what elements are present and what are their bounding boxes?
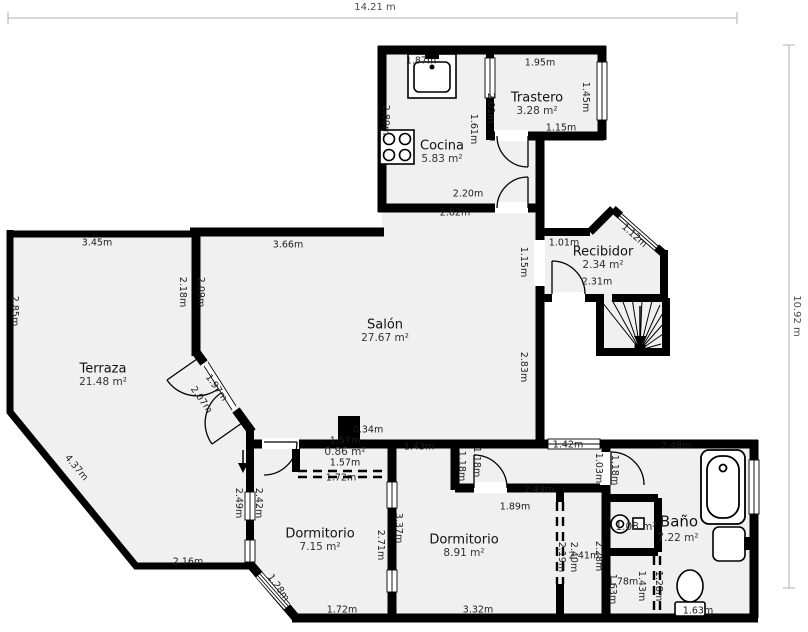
dim-label: 2.82m	[440, 208, 470, 218]
dim-label: 1.01m	[549, 238, 579, 248]
dim-label: 2.48m	[661, 441, 691, 451]
room-label-trastero: Trastero	[511, 92, 563, 105]
dim-label: 1.18m	[456, 451, 466, 481]
dim-label: 1.61m	[468, 114, 478, 144]
dim-label: 2.31m	[582, 277, 612, 287]
dim-label: 2.49m	[233, 488, 243, 518]
room-label-recibidor: Recibidor	[573, 246, 634, 259]
room-label-cocina: Cocina	[420, 140, 464, 153]
overall-width-label: 14.21 m	[354, 3, 396, 13]
dim-label: 1.87m	[406, 56, 436, 66]
dim-label: 1.45m	[580, 82, 590, 112]
room-label-terraza: Terraza	[80, 363, 127, 376]
dim-label: 1.57m	[330, 436, 360, 446]
room-label-dormitorio-2: Dormitorio	[429, 534, 498, 547]
room-area-salon: 27.67 m²	[361, 333, 409, 344]
overall-height-label: 10.92 m	[791, 295, 801, 337]
dim-label: 1.63m	[607, 574, 617, 604]
room-area-dormitorio-1: 7.15 m²	[299, 542, 340, 553]
dim-label: 2.19m	[556, 542, 566, 572]
dim-label: 2.18m	[177, 277, 187, 307]
dim-label: 1.18m	[609, 455, 619, 485]
room-area-dormitorio-2: 8.91 m²	[443, 548, 484, 559]
dim-label: 1.42m	[553, 440, 583, 450]
dim-label: 2.83m	[518, 352, 528, 382]
room-area-bano: 7.22 m²	[657, 533, 698, 544]
dim-label: 3.66m	[273, 240, 303, 250]
dim-label: 1.28m	[653, 571, 663, 601]
dim-label: 2.42m	[253, 488, 263, 518]
dim-label: 3.32m	[463, 605, 493, 615]
dim-label: 2.20m	[453, 189, 483, 199]
dim-label: 2.16m	[173, 557, 203, 567]
dim-label: 1.57m	[330, 458, 360, 468]
dim-label: 2.80m	[380, 105, 390, 135]
dim-label: 2.09m	[195, 277, 205, 307]
dim-label: 1.72m	[326, 473, 356, 483]
dim-label: 1.72m	[327, 605, 357, 615]
dim-label: 1.03m	[593, 453, 603, 483]
dim-label: 1.15m	[546, 123, 576, 133]
room-area-trastero: 3.28 m²	[516, 106, 557, 117]
room-label-bano: Baño	[660, 515, 698, 530]
utility-area-label: 1.08 m²	[615, 522, 656, 533]
dim-label: 2.01m	[485, 93, 495, 123]
room-area-cocina: 5.83 m²	[421, 154, 462, 165]
dim-label: 2.28m	[593, 541, 603, 571]
dim-label: 2.49m	[524, 485, 554, 495]
dim-label: 1.63m	[683, 606, 713, 616]
dim-label: 1.89m	[500, 502, 530, 512]
dim-label: 1.95m	[525, 58, 555, 68]
room-label-salon: Salón	[367, 319, 403, 332]
closet-area-label: 0.86 m²	[324, 447, 365, 458]
room-area-recibidor: 2.34 m²	[582, 260, 623, 271]
dim-label: 1.18m	[471, 447, 481, 477]
dim-label: 1.15m	[518, 247, 528, 277]
dim-label: 3.37m	[393, 513, 403, 543]
dim-label: 2.71m	[375, 530, 385, 560]
bathtub-icon	[701, 450, 745, 524]
floor-plan: 14.21 m 10.92 m Salón 27.67 m² Terraza 2…	[0, 0, 808, 632]
dim-label: 1.43m	[404, 442, 434, 452]
room-label-dormitorio-1: Dormitorio	[285, 528, 354, 541]
dim-label: 0.34m	[353, 425, 383, 435]
room-area-terraza: 21.48 m²	[79, 377, 127, 388]
dim-label: 1.43m	[636, 571, 646, 601]
dim-label: 2.85m	[9, 296, 19, 326]
dim-label: 3.45m	[82, 238, 112, 248]
